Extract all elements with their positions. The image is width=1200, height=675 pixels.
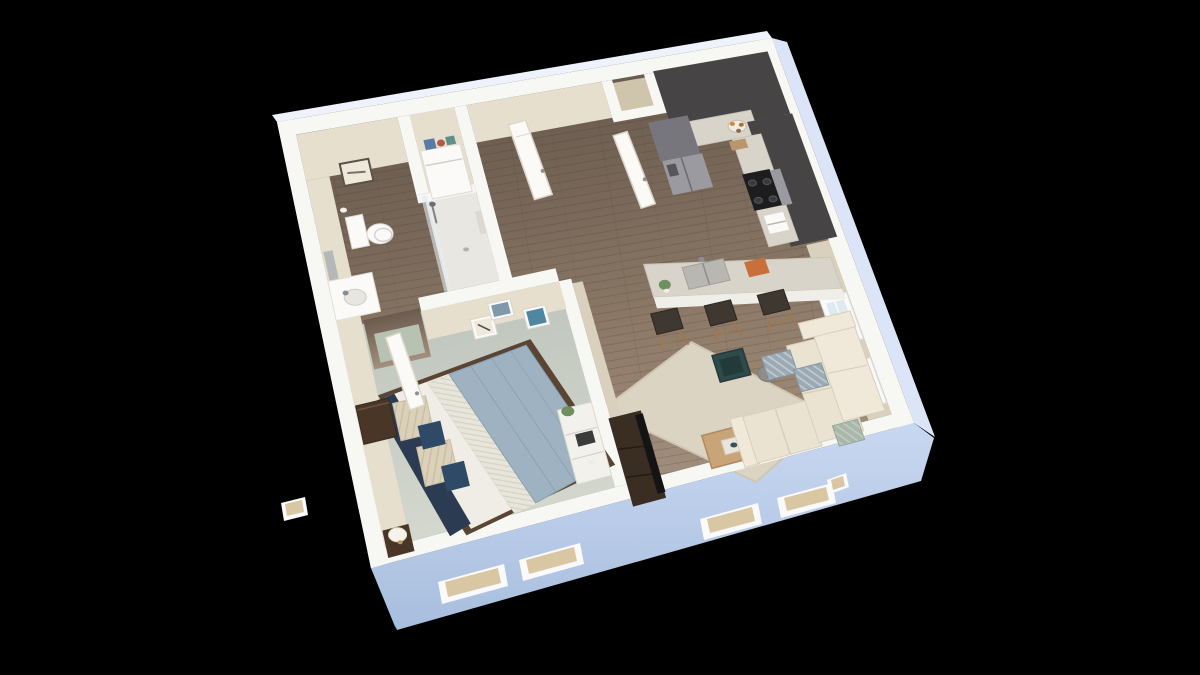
tea-bottle-2 [739, 123, 744, 127]
floorplan-render-stage [0, 0, 1200, 675]
hall-door-2-handle [643, 177, 647, 181]
island-plant [659, 280, 671, 290]
burner-3 [754, 197, 762, 203]
detergent-red [437, 140, 445, 147]
bedroom-door-handle [415, 391, 419, 395]
island-plant-pot [664, 289, 670, 293]
bathroom-art-sketch [348, 172, 365, 173]
tea-bottle-1 [730, 122, 735, 126]
island-faucet [698, 257, 704, 262]
stool-2-leg-a [715, 324, 716, 342]
dresser-plant [561, 406, 574, 416]
stool-3-leg-a [768, 313, 769, 331]
shower-drain [463, 247, 469, 251]
lamp-base [398, 540, 403, 544]
stool-1-leg-a [661, 333, 662, 351]
dresser-decor [588, 460, 595, 465]
burner-4 [769, 196, 777, 202]
tea-bottle-3 [736, 129, 741, 133]
coffee-table-book [730, 443, 737, 448]
burner-2 [763, 179, 771, 185]
lamp-shade [389, 528, 407, 542]
toilet-paper-holder [340, 208, 347, 213]
hall-door-1-handle [541, 169, 545, 173]
vanity-faucet [343, 291, 349, 296]
floorplan-3d-svg [0, 0, 1200, 675]
burner-1 [748, 180, 756, 186]
